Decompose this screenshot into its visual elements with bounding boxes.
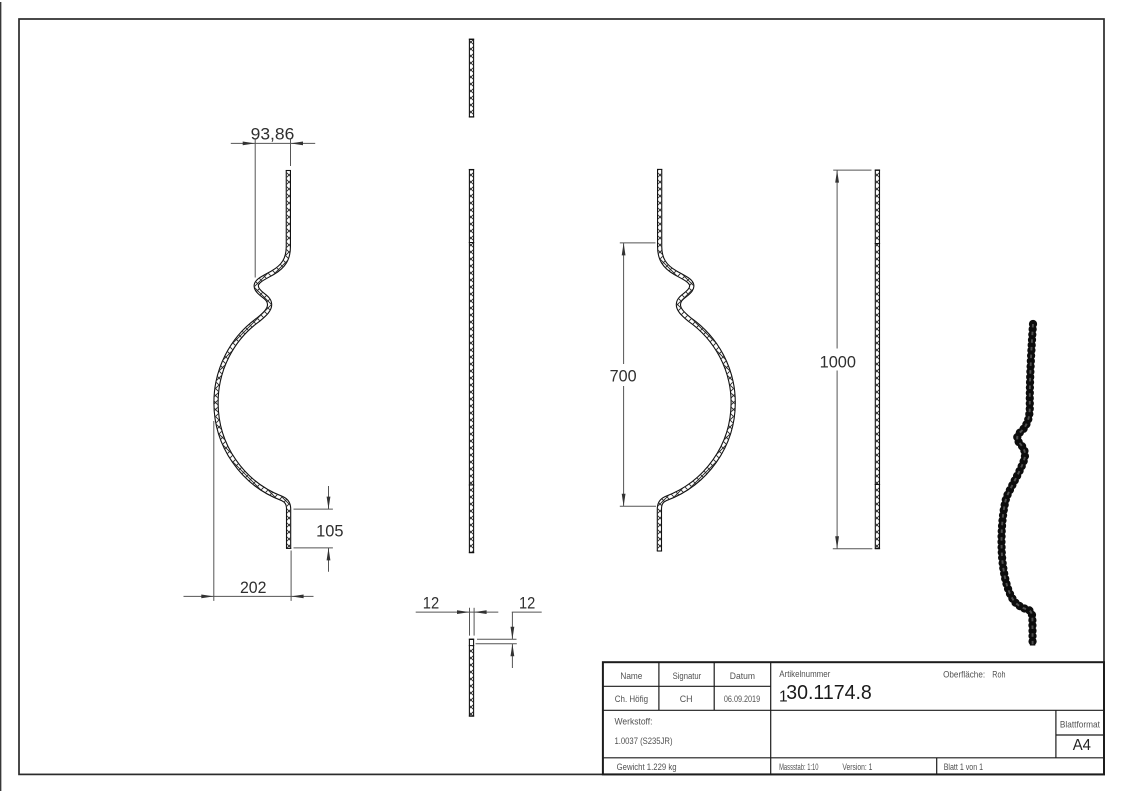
svg-text:105: 105	[316, 521, 343, 540]
svg-text:Signatur: Signatur	[673, 671, 702, 681]
svg-text:30.1174.8: 30.1174.8	[786, 681, 872, 704]
svg-text:Ch. Höfig: Ch. Höfig	[615, 694, 648, 704]
svg-text:12: 12	[423, 594, 439, 613]
svg-text:Version: 1: Version: 1	[842, 762, 872, 772]
svg-text:Datum: Datum	[730, 671, 755, 681]
svg-text:700: 700	[610, 367, 637, 386]
svg-text:06.09.2019: 06.09.2019	[724, 694, 760, 704]
svg-text:12: 12	[519, 594, 535, 613]
svg-text:1.0037 (S235JR): 1.0037 (S235JR)	[615, 736, 673, 746]
svg-text:1000: 1000	[820, 353, 856, 372]
svg-text:A4: A4	[1073, 737, 1091, 754]
svg-text:CH: CH	[680, 694, 693, 704]
svg-text:Massstab: 1:10: Massstab: 1:10	[779, 762, 818, 772]
svg-text:Roh: Roh	[992, 670, 1005, 680]
svg-text:Oberfläche:: Oberfläche:	[943, 670, 985, 680]
svg-text:Name: Name	[620, 671, 642, 681]
svg-text:Gewicht 1.229 kg: Gewicht 1.229 kg	[617, 762, 677, 772]
svg-text:202: 202	[240, 578, 267, 597]
svg-text:93,86: 93,86	[251, 125, 295, 144]
svg-text:Artikelnummer: Artikelnummer	[779, 669, 830, 679]
svg-text:Blatt 1 von 1: Blatt 1 von 1	[944, 762, 983, 772]
svg-text:Blattformat: Blattformat	[1060, 719, 1100, 729]
svg-text:Werkstoff:: Werkstoff:	[615, 717, 653, 727]
